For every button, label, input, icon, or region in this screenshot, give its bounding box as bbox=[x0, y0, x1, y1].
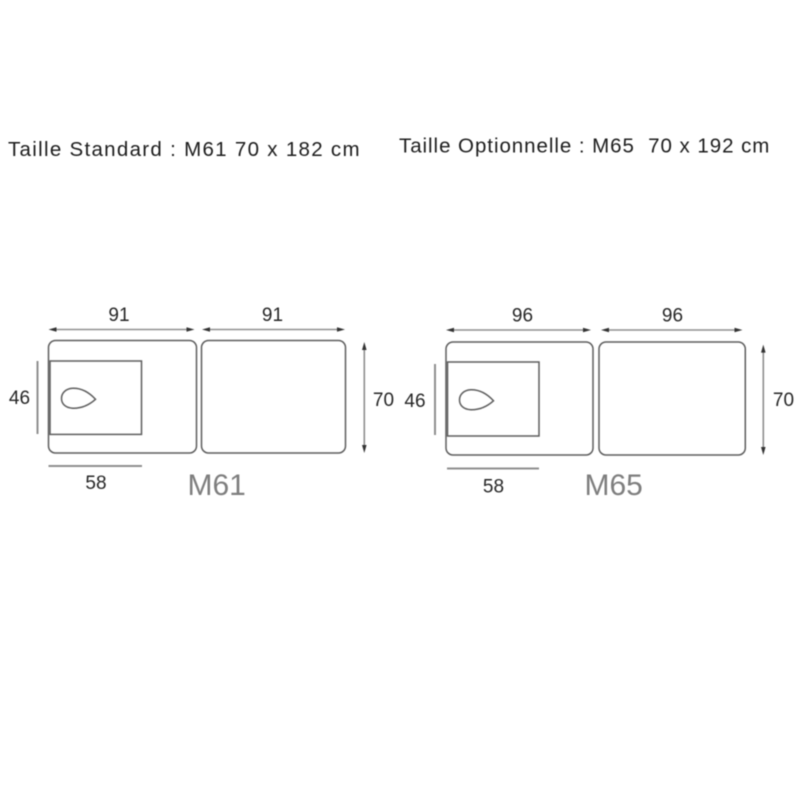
svg-text:96: 96 bbox=[662, 306, 683, 327]
svg-text:96: 96 bbox=[512, 306, 533, 327]
svg-text:58: 58 bbox=[85, 473, 106, 494]
svg-text:58: 58 bbox=[483, 477, 504, 498]
svg-text:M61: M61 bbox=[188, 469, 246, 502]
svg-text:Taille Standard : M61 70 x 182: Taille Standard : M61 70 x 182 cm bbox=[8, 138, 361, 161]
svg-text:46: 46 bbox=[404, 391, 425, 412]
svg-text:M65: M65 bbox=[585, 469, 643, 502]
svg-text:46: 46 bbox=[9, 388, 30, 409]
svg-text:70: 70 bbox=[773, 390, 794, 411]
svg-text:70: 70 bbox=[373, 390, 394, 411]
svg-text:Taille Optionnelle : M65 70 x: Taille Optionnelle : M65 70 x 192 cm bbox=[399, 135, 770, 158]
svg-text:91: 91 bbox=[262, 305, 283, 326]
svg-text:91: 91 bbox=[108, 305, 129, 326]
